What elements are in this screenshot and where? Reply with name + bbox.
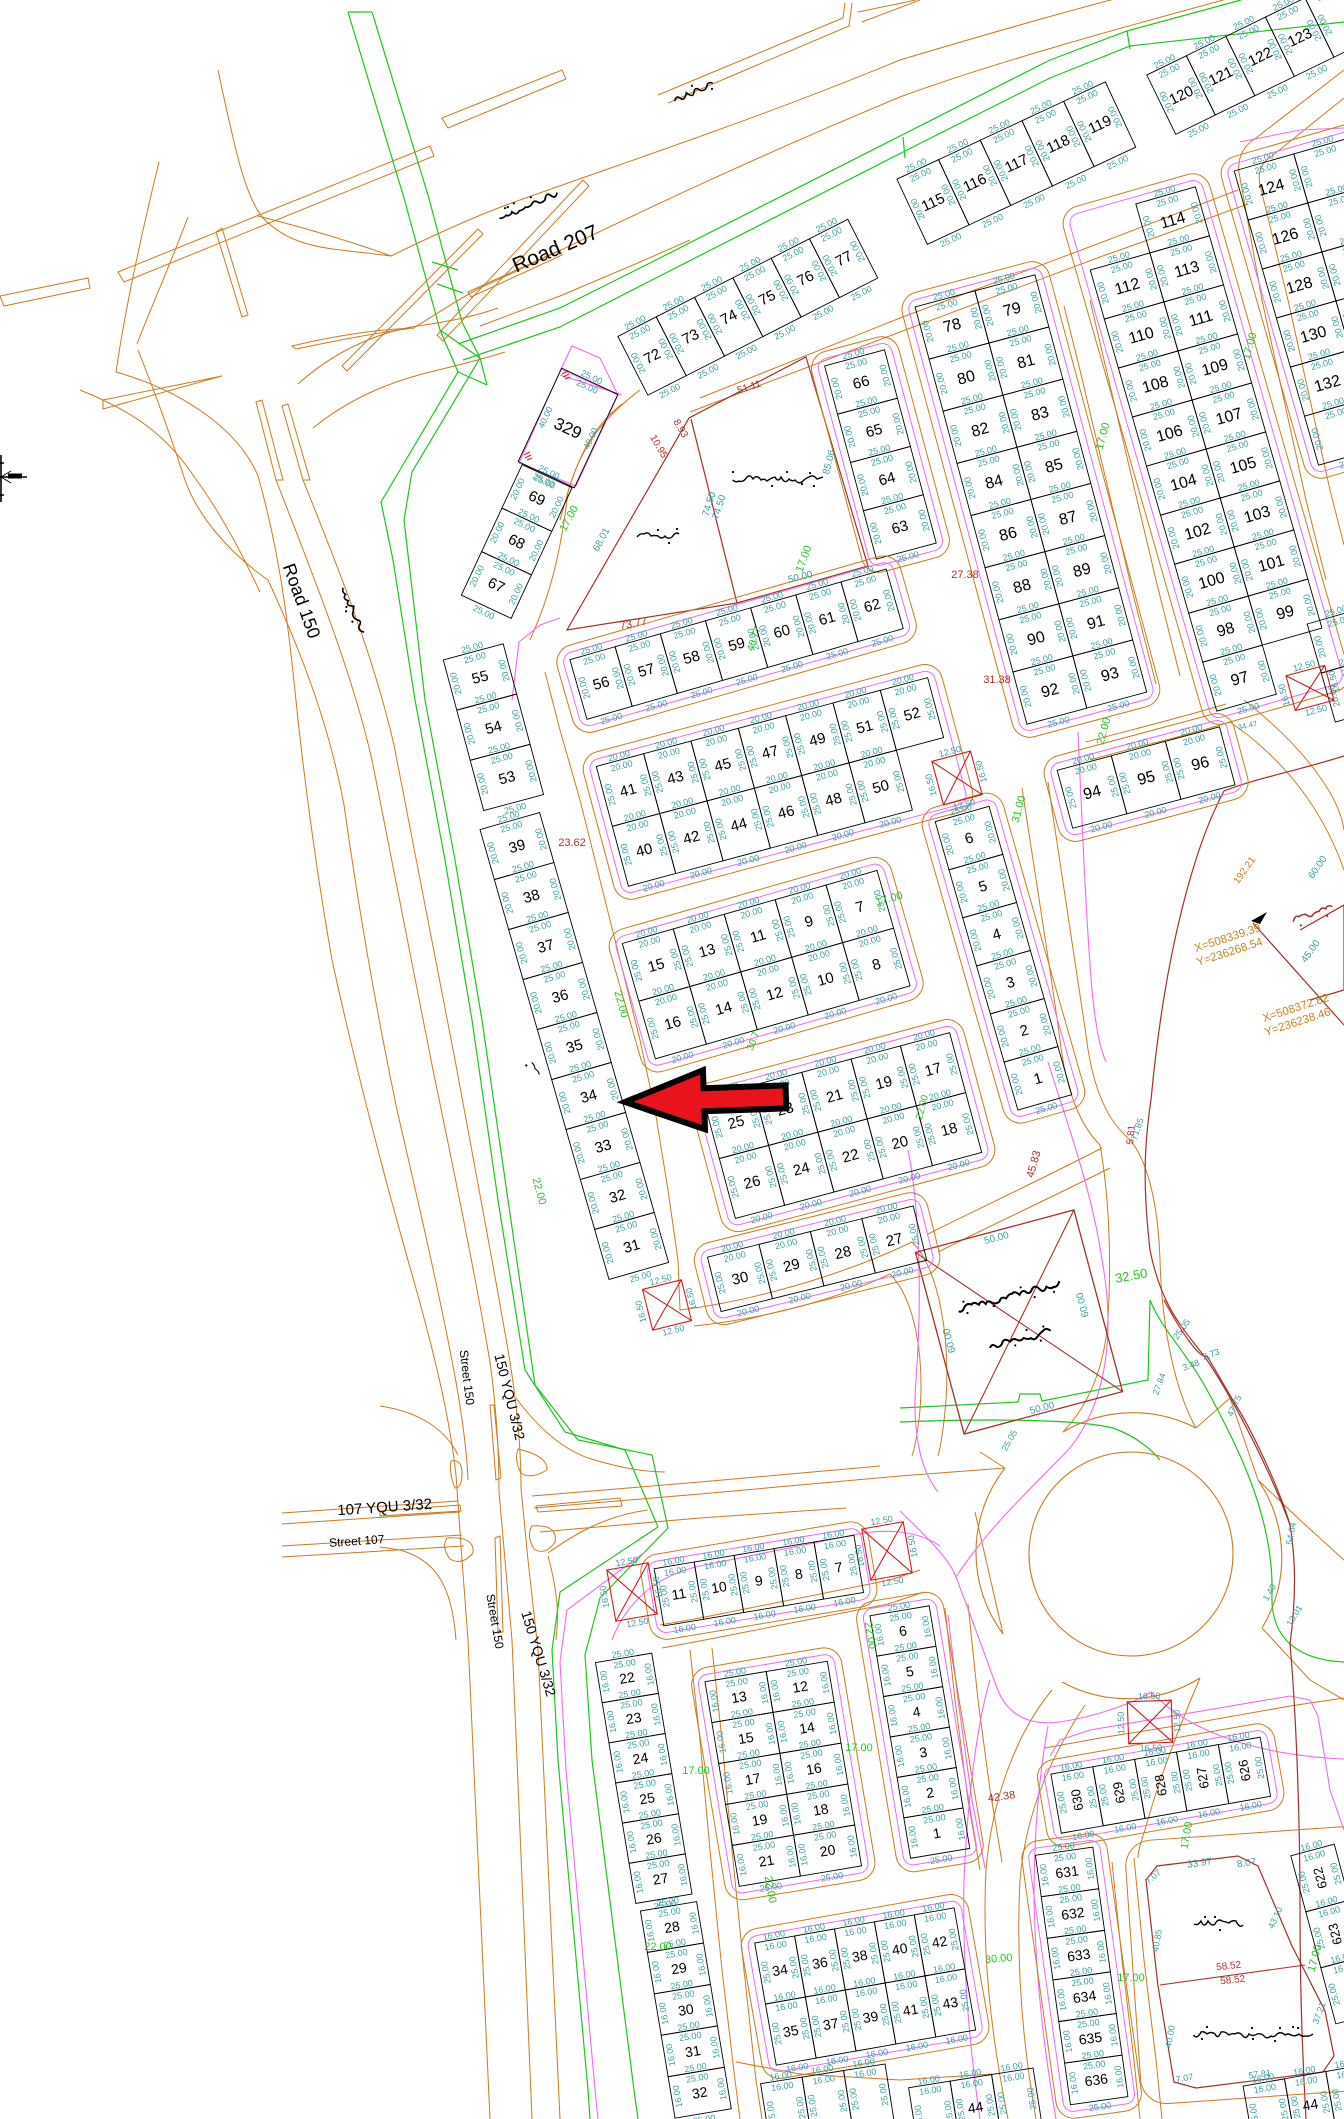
svg-text:18: 18: [812, 1800, 830, 1818]
svg-text:634: 634: [1072, 1987, 1098, 2006]
svg-text:24: 24: [631, 1749, 649, 1767]
svg-text:27.38: 27.38: [951, 569, 979, 581]
svg-text:17.00: 17.00: [845, 1742, 873, 1754]
svg-text:23: 23: [625, 1709, 643, 1727]
svg-text:16.50: 16.50: [1139, 1743, 1162, 1754]
svg-text:44: 44: [967, 2098, 985, 2116]
svg-text:28: 28: [663, 1918, 681, 1936]
svg-text:21: 21: [757, 1852, 775, 1870]
svg-text:20: 20: [819, 1841, 837, 1859]
svg-text:27: 27: [652, 1869, 670, 1887]
svg-text:11: 11: [670, 1585, 687, 1603]
svg-text:12.50: 12.50: [1116, 1712, 1127, 1735]
svg-text:25: 25: [638, 1789, 656, 1807]
svg-text:35: 35: [782, 2022, 800, 2040]
svg-text:36: 36: [811, 1954, 829, 1972]
svg-text:31: 31: [684, 2042, 702, 2060]
svg-text:37: 37: [822, 2015, 840, 2033]
svg-text:22.00: 22.00: [644, 1941, 672, 1953]
svg-text:16: 16: [805, 1759, 823, 1777]
svg-text:26: 26: [645, 1829, 663, 1847]
svg-text:39: 39: [861, 2008, 879, 2026]
svg-text:17.00: 17.00: [1117, 1972, 1145, 1984]
svg-text:41: 41: [901, 2001, 919, 2019]
svg-text:40: 40: [891, 1940, 909, 1958]
svg-text:17: 17: [744, 1770, 762, 1788]
svg-text:632: 632: [1060, 1904, 1086, 1923]
svg-text:15: 15: [737, 1729, 755, 1747]
svg-text:31.38: 31.38: [983, 674, 1011, 686]
svg-text:16.50: 16.50: [1138, 1691, 1161, 1702]
svg-text:17.00: 17.00: [682, 1765, 710, 1777]
svg-text:12.50: 12.50: [1172, 1710, 1183, 1733]
svg-text:13: 13: [730, 1688, 748, 1706]
svg-text:14: 14: [798, 1718, 816, 1736]
svg-text:30.00: 30.00: [985, 1952, 1013, 1966]
svg-text:38: 38: [851, 1947, 869, 1965]
svg-text:10: 10: [710, 1578, 728, 1596]
svg-text:29: 29: [670, 1959, 688, 1977]
svg-text:631: 631: [1054, 1862, 1080, 1881]
svg-text:42: 42: [930, 1933, 948, 1951]
svg-text:44: 44: [1301, 2095, 1319, 2113]
svg-text:34: 34: [771, 1961, 789, 1979]
svg-text:12: 12: [791, 1677, 809, 1695]
svg-text:19: 19: [751, 1811, 769, 1829]
svg-text:30: 30: [677, 2001, 695, 2019]
svg-text:32: 32: [691, 2083, 709, 2101]
svg-text:22: 22: [618, 1669, 636, 1687]
svg-text:636: 636: [1084, 2070, 1110, 2089]
svg-text:23.62: 23.62: [558, 837, 586, 849]
svg-text:635: 635: [1078, 2029, 1104, 2048]
svg-text:43: 43: [941, 1994, 959, 2012]
svg-text:633: 633: [1066, 1945, 1092, 1964]
